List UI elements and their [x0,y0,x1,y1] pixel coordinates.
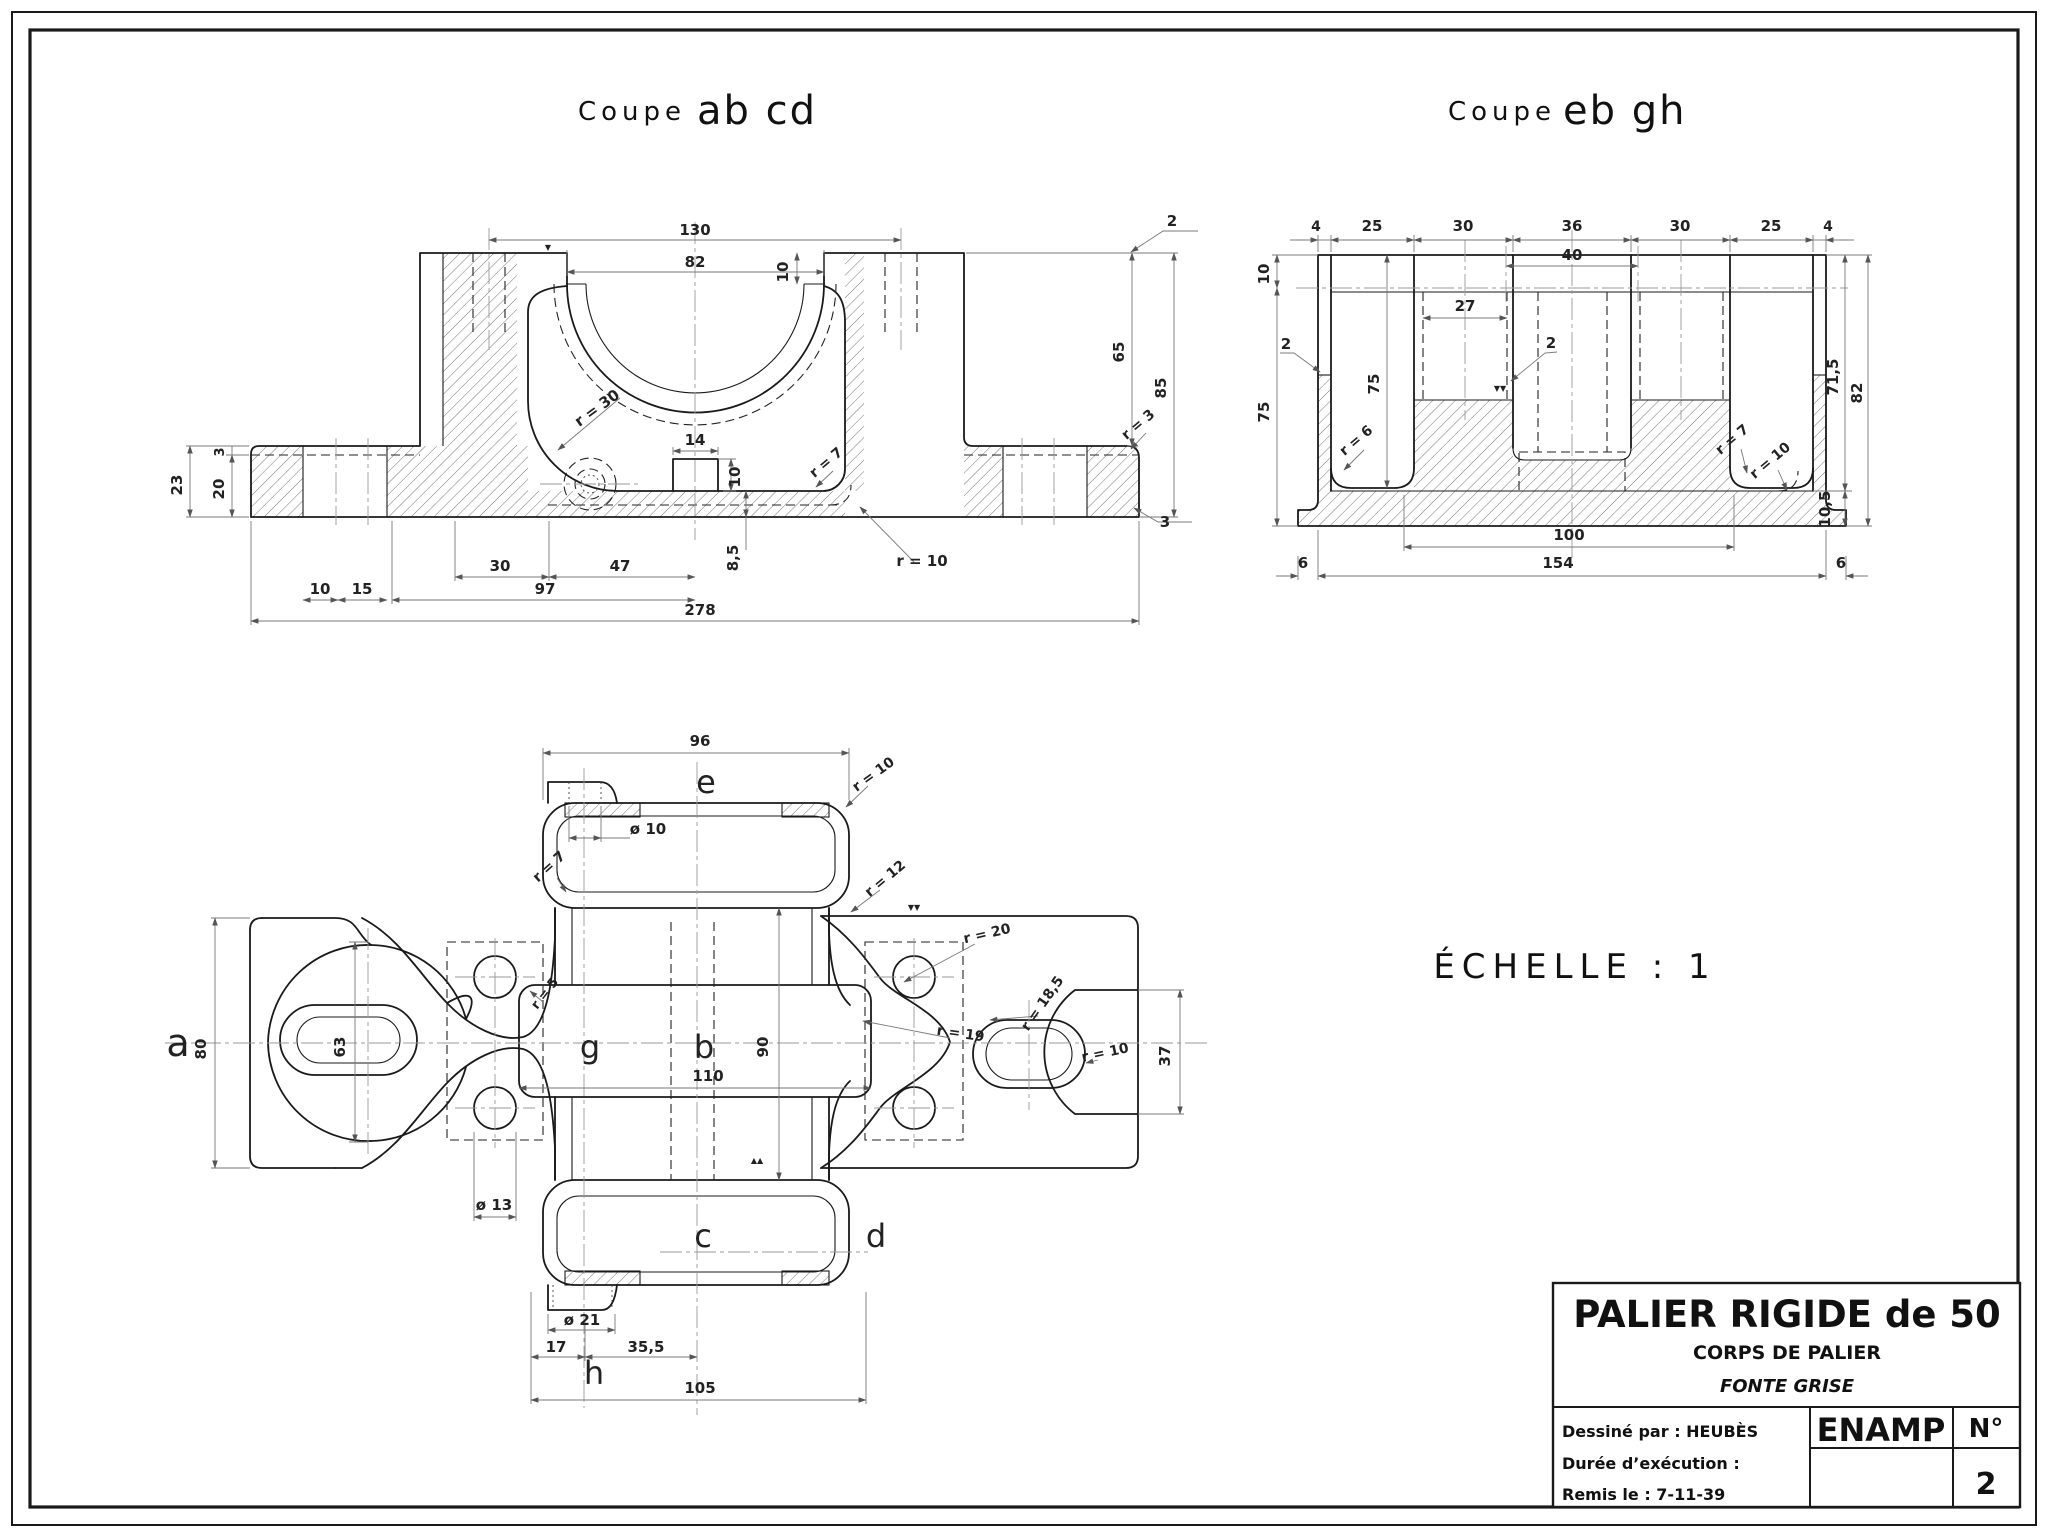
dimension-label: ø 21 [564,1311,600,1329]
sheet-number-label: N° [1969,1414,2004,1444]
dimension-label: 3 [213,447,228,456]
dimension-label: r = 10 [1747,439,1794,482]
submitted-date: Remis le : 7-11-39 [1562,1485,1725,1504]
view-title-prefix: Coupe [578,97,686,127]
dimension-label: 40 [1562,246,1583,264]
school-name: ENAMP [1817,1411,1946,1449]
dimension-lines [186,231,1198,625]
dimension-label: 2 [1281,335,1291,353]
dimension-label: 75 [1365,374,1383,395]
dimension-label: 36 [1562,217,1583,235]
dimension-label: 17 [546,1338,567,1356]
section-letter: c [694,1217,712,1255]
dimension-label: 47 [610,557,631,575]
dimension-label: 30 [1670,217,1691,235]
dimension-label: r = 10 [896,552,947,570]
machining-mark: ▼▼ [908,903,921,912]
dimension-label: r = 10 [1080,1040,1130,1066]
machining-mark: ▲▲ [751,1156,764,1165]
dimension-label: 71,5 [1824,358,1842,395]
dimension-label: 35,5 [627,1338,664,1356]
dimension-label: 82 [685,253,706,271]
dimension-label: 97 [535,580,556,598]
technical-drawing: Coupe ab cd [0,0,2048,1537]
view-title-name: eb gh [1563,88,1686,134]
dimension-label: 154 [1542,554,1573,572]
drawing-sheet: Coupe ab cd [0,0,2048,1537]
dimension-label: 27 [1455,297,1476,315]
dimension-label: 4 [1823,219,1833,235]
dimension-label: 15 [352,580,373,598]
dimension-label: 278 [684,601,715,619]
section-letter: a [166,1021,189,1065]
section-letter: e [696,763,716,801]
dimension-label: r = 20 [962,921,1012,947]
drawn-by: Dessiné par : HEUBÈS [1562,1422,1758,1441]
part-subtitle: CORPS DE PALIER [1693,1342,1881,1364]
dimension-label: r = 7 [530,848,569,885]
dimension-label: 82 [1848,383,1866,404]
dimension-label: ø 10 [630,820,666,838]
dimension-label: r = 7 [807,445,846,482]
plan-view [165,748,1210,1415]
dimension-label: 37 [1156,1046,1174,1067]
section-view-ab-cd: Coupe ab cd [186,88,1198,625]
dimension-label: 4 [1311,219,1321,235]
dimension-label: 8,5 [724,545,742,572]
dimension-label: r = 3 [1119,407,1158,444]
dimension-label: 96 [690,732,711,750]
dimension-label: r = 6 [1337,423,1376,460]
view-title-name: ab cd [697,88,817,134]
dimension-label: 85 [1152,378,1170,399]
title-block: PALIER RIGIDE de 50 CORPS DE PALIER FONT… [1553,1283,2020,1507]
dimension-label: r = 12 [862,857,909,900]
dimension-label: 6 [1836,554,1846,572]
dimension-label: 105 [684,1379,715,1397]
dimension-label: 65 [1110,342,1128,363]
dimension-label: 10 [310,580,331,598]
dimension-label: 10 [774,262,792,283]
dimension-label: 2 [1167,212,1177,230]
part-title: PALIER RIGIDE de 50 [1573,1293,2001,1336]
section-view-eb-gh: Coupe eb gh [1272,88,1872,580]
execution-duration: Durée d’exécution : [1562,1454,1740,1473]
section-letter: h [584,1354,604,1392]
dimension-label: 110 [692,1067,723,1085]
dimension-label: 10,5 [1816,490,1834,527]
dimension-label: ø 13 [476,1196,512,1214]
dimension-label: 30 [490,557,511,575]
dimension-label: 30 [1453,217,1474,235]
machining-mark: ▼ [545,243,552,252]
dimension-label: 63 [331,1037,349,1058]
annotation-layer: 130821014108,5r = 30r = 7r = 32365852320… [166,212,1866,1397]
dimension-label: 130 [679,221,710,239]
section-letter: d [866,1217,886,1255]
dimension-label: 75 [1255,402,1273,423]
dimension-label: 6 [1298,554,1308,572]
dimension-label: 10 [726,467,744,488]
view-title-prefix: Coupe [1448,97,1556,127]
part-material: FONTE GRISE [1720,1376,1855,1397]
dimension-label: 14 [685,431,706,449]
dimension-label: 90 [754,1037,772,1058]
dimension-label: r = 19 [936,1023,986,1046]
section-letter: g [580,1028,600,1066]
dimension-label: 10 [1255,264,1273,285]
dimension-label: 2 [1546,334,1556,352]
section-letter: b [694,1028,714,1066]
machining-mark: ▼▼ [1494,384,1507,393]
dimension-label: 23 [168,475,186,496]
dimension-label: 100 [1553,526,1584,544]
dimension-label: 25 [1362,217,1383,235]
dimension-label: 25 [1761,217,1782,235]
dimension-label: 80 [192,1039,210,1060]
scale-note: ÉCHELLE : 1 [1433,946,1716,987]
dimension-label: r = 30 [571,386,623,431]
dimension-label: 3 [1160,513,1170,531]
dimension-label: 20 [210,479,228,500]
dimension-label: r = 10 [850,754,898,795]
sheet-number: 2 [1976,1467,1997,1502]
